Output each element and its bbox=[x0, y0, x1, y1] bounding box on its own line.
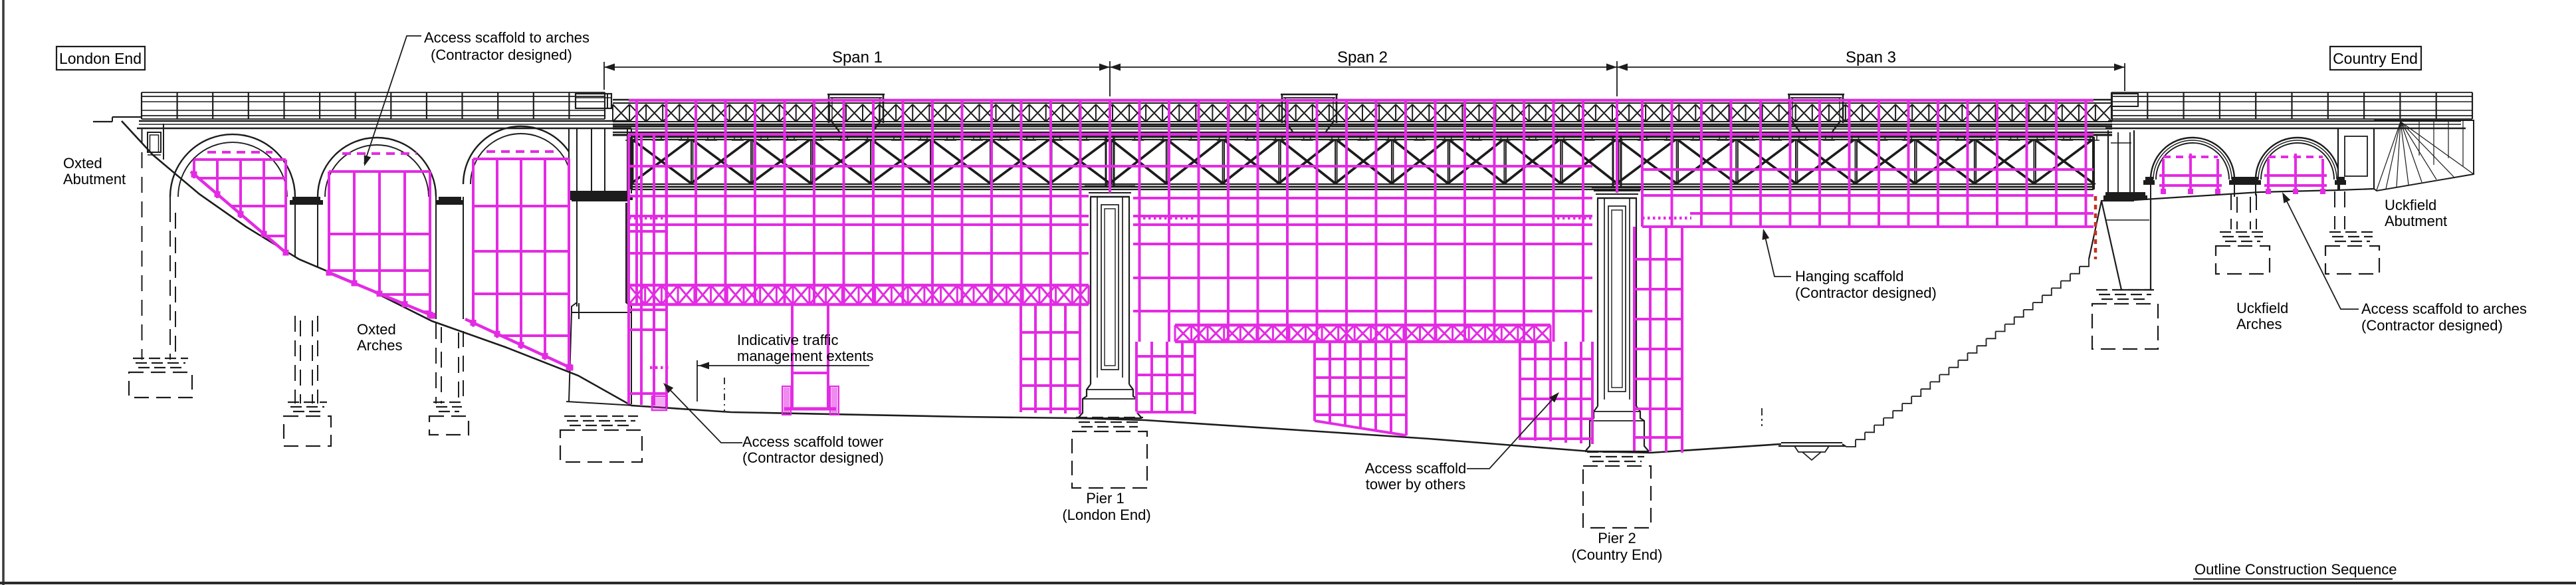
svg-text:Arches: Arches bbox=[2236, 316, 2282, 332]
svg-text:Oxted: Oxted bbox=[63, 155, 102, 172]
svg-text:tower by others: tower by others bbox=[1366, 476, 1465, 493]
svg-text:Arches: Arches bbox=[357, 337, 402, 354]
svg-text:(Country End): (Country End) bbox=[1572, 546, 1663, 563]
svg-text:(Contractor designed): (Contractor designed) bbox=[2361, 317, 2503, 334]
svg-text:Access scaffold to arches: Access scaffold to arches bbox=[2361, 300, 2527, 317]
svg-text:Hanging scaffold: Hanging scaffold bbox=[1795, 268, 1904, 285]
svg-text:(Contractor designed): (Contractor designed) bbox=[742, 449, 884, 466]
svg-text:Outline Construction Sequence: Outline Construction Sequence bbox=[2195, 561, 2397, 578]
svg-text:Pier 1: Pier 1 bbox=[1086, 490, 1124, 507]
svg-text:Indicative traffic: Indicative traffic bbox=[737, 332, 838, 348]
svg-text:management extents: management extents bbox=[737, 348, 873, 364]
svg-text:(Contractor designed): (Contractor designed) bbox=[1795, 285, 1937, 301]
svg-text:Uckfield: Uckfield bbox=[2385, 197, 2436, 213]
svg-text:Abutment: Abutment bbox=[63, 171, 126, 187]
svg-text:Uckfield: Uckfield bbox=[2236, 300, 2288, 316]
svg-text:Access scaffold: Access scaffold bbox=[1365, 460, 1466, 477]
svg-text:Access scaffold to arches: Access scaffold to arches bbox=[424, 29, 590, 46]
svg-text:Oxted: Oxted bbox=[357, 321, 396, 338]
svg-text:Country End: Country End bbox=[2333, 50, 2418, 67]
svg-text:Abutment: Abutment bbox=[2385, 213, 2447, 229]
svg-text:London End: London End bbox=[59, 50, 142, 67]
svg-text:Pier 2: Pier 2 bbox=[1598, 530, 1636, 546]
svg-text:(Contractor designed): (Contractor designed) bbox=[431, 47, 572, 63]
svg-text:Span 2: Span 2 bbox=[1337, 49, 1388, 66]
svg-text:Access scaffold tower: Access scaffold tower bbox=[742, 433, 883, 450]
svg-text:Span 1: Span 1 bbox=[832, 49, 883, 66]
svg-text:Span 3: Span 3 bbox=[1846, 49, 1896, 66]
svg-text:(London End): (London End) bbox=[1062, 507, 1150, 523]
